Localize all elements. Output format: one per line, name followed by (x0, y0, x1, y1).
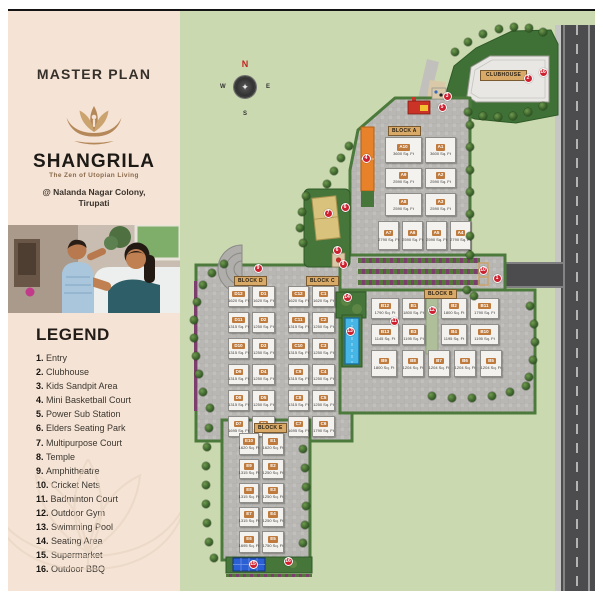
unit-id-chip: B9 (379, 358, 389, 365)
legend-item-label: Power Sub Station (46, 409, 121, 419)
unit-id-chip: C2 (319, 317, 329, 324)
marker-13: 13 (346, 327, 355, 336)
unit-E8: E81315 Sq. Ft (239, 483, 259, 503)
master-plan-page: MASTER PLAN SHANGRILA The Zen of Utopian… (0, 0, 603, 599)
block-label-block-b: BLOCK B (424, 289, 457, 299)
unit-sqft: 3600 Sq. Ft (393, 152, 414, 156)
legend-item-label: Clubhouse (46, 367, 89, 377)
unit-D5: D51250 Sq. Ft (252, 390, 275, 411)
unit-C5: C51250 Sq. Ft (312, 390, 335, 411)
legend-item-label: Cricket Nets (51, 480, 100, 490)
unit-id-chip: D3 (259, 343, 269, 350)
unit-id-chip: E6 (244, 536, 254, 543)
unit-B8: B81204 Sq. Ft (402, 350, 424, 377)
tree-icon (510, 23, 518, 31)
unit-sqft: 2790 Sq. Ft (378, 238, 399, 242)
unit-sqft: 1695 Sq. Ft (239, 544, 260, 548)
tree-icon (525, 24, 533, 32)
unit-id-chip: D11 (232, 317, 244, 324)
unit-B9: B91800 Sq. Ft (371, 350, 397, 377)
unit-sqft: 1250 Sq. Ft (263, 495, 284, 499)
legend-item-6: 6. Elders Seating Park (36, 424, 174, 433)
unit-id-chip: B5 (486, 358, 496, 365)
lotus-icon (62, 103, 126, 149)
unit-E3: E31250 Sq. Ft (262, 483, 284, 503)
legend-item-15: 15. Supermarket (36, 551, 174, 560)
tree-icon (448, 394, 456, 402)
legend-item-label: Temple (46, 452, 75, 462)
unit-B5: B51204 Sq. Ft (480, 350, 502, 377)
unit-id-chip: A2 (436, 172, 446, 179)
unit-id-chip: C3 (319, 343, 329, 350)
unit-id-chip: D10 (232, 343, 244, 350)
unit-id-chip: B2 (449, 303, 459, 310)
unit-sqft: 1750 Sq. Ft (263, 544, 284, 548)
unit-id-chip: C6 (319, 421, 329, 428)
legend-item-label: Multipurpose Court (46, 438, 122, 448)
unit-sqft: 1250 Sq. Ft (253, 377, 274, 381)
unit-id-chip: E10 (243, 438, 255, 445)
info-panel: MASTER PLAN SHANGRILA The Zen of Utopian… (8, 11, 180, 591)
compass-west-label: W (220, 84, 226, 90)
unit-sqft: 1315 Sq. Ft (228, 325, 249, 329)
marker-14: 14 (343, 293, 352, 302)
legend-item-label: Elders Seating Park (46, 423, 126, 433)
compass-south-label: S (220, 111, 270, 117)
unit-D1: D11620 Sq. Ft (252, 286, 275, 307)
unit-A2: A22590 Sq. Ft (425, 168, 456, 188)
unit-id-chip: A10 (397, 144, 409, 151)
tree-icon (466, 143, 474, 151)
unit-E2: E21250 Sq. Ft (262, 459, 284, 479)
unit-id-chip: B1 (409, 303, 419, 310)
unit-sqft: 1204 Sq. Ft (429, 366, 450, 370)
legend-item-4: 4. Mini Basketball Court (36, 396, 174, 405)
unit-E9: E91315 Sq. Ft (239, 459, 259, 479)
brand-logo (8, 103, 180, 149)
tree-icon (203, 519, 211, 527)
unit-id-chip: A5 (432, 230, 442, 237)
marker-9: 9 (254, 264, 263, 273)
tree-icon (299, 239, 307, 247)
tree-icon (299, 539, 307, 547)
unit-sqft: 1315 Sq. Ft (239, 471, 260, 475)
tree-icon (298, 208, 306, 216)
tree-icon (210, 554, 218, 562)
unit-C7: C71695 Sq. Ft (288, 416, 309, 437)
unit-id-chip: C11 (292, 317, 304, 324)
legend-item-label: Outdoor Gym (51, 508, 105, 518)
marker-16: 16 (539, 68, 548, 77)
tree-icon (337, 154, 345, 162)
tree-icon (199, 281, 207, 289)
unit-sqft: 2590 Sq. Ft (402, 238, 423, 242)
tree-icon (296, 224, 304, 232)
tree-icon (302, 483, 310, 491)
unit-id-chip: B4 (449, 329, 459, 336)
unit-id-chip: D4 (259, 369, 269, 376)
compass-east-label: E (266, 84, 270, 90)
legend-item-label: Supermarket (51, 550, 103, 560)
unit-E5: E51750 Sq. Ft (262, 531, 284, 553)
tree-icon (195, 370, 203, 378)
marker-7: 7 (324, 209, 333, 218)
unit-E1: E11620 Sq. Ft (262, 433, 284, 455)
mother-child-photo (8, 225, 180, 313)
unit-C4: C41250 Sq. Ft (312, 364, 335, 385)
unit-sqft: 1315 Sq. Ft (239, 495, 260, 499)
unit-id-chip: A9 (399, 172, 409, 179)
unit-B7: B71204 Sq. Ft (428, 350, 450, 377)
unit-B4: B41195 Sq. Ft (441, 324, 467, 345)
legend-item-number: 3. (36, 381, 46, 391)
tree-icon (495, 25, 503, 33)
legend-heading: LEGEND (36, 325, 174, 345)
tree-icon (466, 232, 474, 240)
unit-id-chip: B10 (478, 329, 490, 336)
unit-C12: C121620 Sq. Ft (288, 286, 309, 307)
unit-id-chip: E8 (244, 487, 254, 494)
unit-D8: D81315 Sq. Ft (228, 390, 249, 411)
brand-tagline: The Zen of Utopian Living (8, 172, 180, 179)
unit-B6: B61204 Sq. Ft (454, 350, 476, 377)
tree-icon (202, 500, 210, 508)
legend-item-1: 1. Entry (36, 354, 174, 363)
unit-D3: D31250 Sq. Ft (252, 338, 275, 359)
unit-id-chip: E7 (244, 511, 254, 518)
unit-B2: B21800 Sq. Ft (441, 298, 467, 319)
tree-icon (299, 445, 307, 453)
unit-sqft: 1195 Sq. Ft (444, 337, 464, 341)
unit-sqft: 1250 Sq. Ft (313, 351, 334, 355)
legend-item-label: Mini Basketball Court (46, 395, 131, 405)
unit-sqft: 1315 Sq. Ft (288, 403, 309, 407)
tree-icon (522, 382, 530, 390)
legend-item-number: 4. (36, 395, 46, 405)
unit-id-chip: A3 (436, 199, 446, 206)
address-line-1: @ Nalanda Nagar Colony, (8, 187, 180, 198)
unit-A6: A62590 Sq. Ft (402, 221, 423, 250)
unit-sqft: 1250 Sq. Ft (263, 519, 284, 523)
legend-item-number: 6. (36, 423, 46, 433)
unit-id-chip: B7 (434, 358, 444, 365)
unit-sqft: 1800 Sq. Ft (403, 311, 424, 315)
unit-sqft: 1195 Sq. Ft (474, 337, 494, 341)
tree-icon (192, 352, 200, 360)
marker-16: 16 (284, 557, 293, 566)
legend-item-number: 2. (36, 367, 46, 377)
unit-id-chip: D5 (259, 395, 269, 402)
legend-item-5: 5. Power Sub Station (36, 410, 174, 419)
unit-C8: C81315 Sq. Ft (288, 390, 309, 411)
unit-sqft: 2590 Sq. Ft (430, 207, 451, 211)
unit-id-chip: E9 (244, 463, 254, 470)
unit-id-chip: B3 (409, 329, 419, 336)
unit-sqft: 1620 Sq. Ft (253, 299, 274, 303)
tree-icon (301, 464, 309, 472)
tree-icon (466, 188, 474, 196)
unit-B13: B131145 Sq. Ft (371, 324, 399, 345)
unit-sqft: 1204 Sq. Ft (481, 366, 502, 370)
unit-id-chip: D12 (232, 291, 244, 298)
unit-sqft: 1250 Sq. Ft (253, 351, 274, 355)
block-label-block-e: BLOCK E (254, 423, 287, 433)
unit-A8: A82590 Sq. Ft (385, 193, 422, 216)
unit-id-chip: D1 (259, 291, 269, 298)
tree-icon (301, 521, 309, 529)
unit-sqft: 1800 Sq. Ft (374, 366, 395, 370)
tree-icon (190, 316, 198, 324)
tree-icon (509, 112, 517, 120)
unit-sqft: 1250 Sq. Ft (313, 403, 334, 407)
legend-item-number: 8. (36, 452, 46, 462)
tree-icon (208, 269, 216, 277)
unit-id-chip: C1 (319, 291, 329, 298)
tree-icon (302, 502, 310, 510)
unit-C1: C11620 Sq. Ft (312, 286, 335, 307)
tree-icon (206, 404, 214, 412)
legend-item-label: Swimming Pool (51, 522, 113, 532)
block-label-block-a: BLOCK A (388, 126, 421, 136)
unit-id-chip: C5 (319, 395, 329, 402)
tree-icon (466, 251, 474, 259)
tree-icon (506, 388, 514, 396)
unit-D10: D101315 Sq. Ft (228, 338, 249, 359)
legend-item-14: 14. Seating Area (36, 537, 174, 546)
unit-id-chip: B8 (408, 358, 418, 365)
legend-item-9: 9. Amphitheatre (36, 467, 174, 476)
block-label-block-d: BLOCK D (234, 276, 267, 286)
legend-item-number: 11. (36, 494, 51, 504)
marker-6: 6 (333, 246, 342, 255)
unit-D12: D121620 Sq. Ft (228, 286, 249, 307)
unit-id-chip: A4 (456, 230, 466, 237)
unit-sqft: 1620 Sq. Ft (228, 299, 249, 303)
legend-item-number: 9. (36, 466, 46, 476)
marker-10: 10 (479, 266, 488, 275)
marker-15: 15 (249, 560, 258, 569)
unit-sqft: 1315 Sq. Ft (228, 403, 249, 407)
legend-item-number: 15. (36, 550, 51, 560)
marker-5: 5 (438, 103, 447, 112)
legend-item-13: 13. Swimming Pool (36, 523, 174, 532)
legend-item-12: 12. Outdoor Gym (36, 509, 174, 518)
unit-A1: A13600 Sq. Ft (425, 137, 456, 163)
unit-id-chip: D7 (234, 421, 244, 428)
legend-item-number: 5. (36, 409, 46, 419)
legend-item-11: 11. Badminton Court (36, 495, 174, 504)
unit-id-chip: A7 (384, 230, 394, 237)
site-map: N W E S ✦ CLUBHOUSE BLOCK AA103600 Sq. F… (180, 11, 595, 591)
tree-icon (323, 180, 331, 188)
compass-north-label: N (220, 59, 270, 69)
legend-item-3: 3. Kids Sandpit Area (36, 382, 174, 391)
unit-C10: C101315 Sq. Ft (288, 338, 309, 359)
unit-id-chip: C10 (292, 343, 304, 350)
unit-E10: E101620 Sq. Ft (239, 433, 259, 455)
unit-id-chip: E4 (268, 511, 278, 518)
tree-icon (466, 166, 474, 174)
tree-icon (202, 462, 210, 470)
unit-id-chip: B6 (460, 358, 470, 365)
unit-B1: B11800 Sq. Ft (402, 298, 425, 319)
unit-sqft: 1695 Sq. Ft (228, 429, 249, 433)
tree-icon (526, 302, 534, 310)
tree-icon (539, 102, 547, 110)
tree-icon (479, 30, 487, 38)
unit-id-chip: C9 (294, 369, 304, 376)
unit-sqft: 1620 Sq. Ft (239, 446, 260, 450)
unit-id-chip: E1 (268, 438, 278, 445)
tree-icon (451, 48, 459, 56)
marker-6: 6 (341, 203, 350, 212)
legend-item-label: Amphitheatre (46, 466, 100, 476)
tree-icon (470, 292, 478, 300)
legend-item-number: 14. (36, 536, 51, 546)
unit-id-chip: B13 (379, 329, 391, 336)
marker-12: 12 (428, 306, 437, 315)
unit-sqft: 1145 Sq. Ft (375, 337, 395, 341)
unit-sqft: 3600 Sq. Ft (430, 152, 451, 156)
legend-item-label: Seating Area (51, 536, 103, 546)
unit-id-chip: D8 (234, 395, 244, 402)
clubhouse-label: CLUBHOUSE (480, 70, 527, 81)
unit-sqft: 1620 Sq. Ft (288, 299, 309, 303)
page-title: MASTER PLAN (8, 66, 180, 82)
unit-sqft: 1315 Sq. Ft (288, 377, 309, 381)
unit-id-chip: C4 (319, 369, 329, 376)
tree-icon (203, 443, 211, 451)
unit-sqft: 1315 Sq. Ft (228, 377, 249, 381)
unit-sqft: 1250 Sq. Ft (253, 325, 274, 329)
legend-item-number: 12. (36, 508, 51, 518)
unit-C3: C31250 Sq. Ft (312, 338, 335, 359)
unit-sqft: 1695 Sq. Ft (288, 429, 309, 433)
tree-icon (190, 334, 198, 342)
unit-sqft: 1620 Sq. Ft (313, 299, 334, 303)
marker-4: 4 (362, 154, 371, 163)
unit-C2: C21250 Sq. Ft (312, 312, 335, 333)
marker-8: 8 (339, 260, 348, 269)
unit-C9: C91315 Sq. Ft (288, 364, 309, 385)
unit-id-chip: C7 (294, 421, 304, 428)
legend-item-number: 10. (36, 480, 51, 490)
unit-A3: A32590 Sq. Ft (425, 193, 456, 216)
legend-item-label: Kids Sandpit Area (46, 381, 118, 391)
unit-sqft: 1250 Sq. Ft (313, 325, 334, 329)
unit-E4: E41250 Sq. Ft (262, 507, 284, 527)
compass-dial-icon: ✦ (234, 76, 256, 98)
unit-id-chip: C8 (294, 395, 304, 402)
tree-icon (494, 113, 502, 121)
tree-icon (205, 538, 213, 546)
tree-icon (525, 373, 533, 381)
family-photo (8, 225, 180, 313)
unit-sqft: 1790 Sq. Ft (313, 429, 334, 433)
tree-icon (202, 481, 210, 489)
unit-sqft: 1315 Sq. Ft (239, 519, 260, 523)
unit-D11: D111315 Sq. Ft (228, 312, 249, 333)
address-line-2: Tirupati (8, 198, 180, 209)
tree-icon (531, 338, 539, 346)
tree-icon (193, 298, 201, 306)
marker-3: 3 (443, 92, 452, 101)
unit-B12: B121790 Sq. Ft (371, 298, 399, 319)
unit-sqft: 1250 Sq. Ft (253, 403, 274, 407)
tree-icon (466, 210, 474, 218)
unit-B10: B101195 Sq. Ft (470, 324, 499, 345)
block-label-block-c: BLOCK C (306, 276, 339, 286)
tree-icon (524, 108, 532, 116)
marker-2: 2 (524, 74, 533, 83)
unit-id-chip: E3 (268, 487, 278, 494)
legend-item-label: Badminton Court (51, 494, 119, 504)
unit-sqft: 1790 Sq. Ft (375, 311, 396, 315)
unit-sqft: 1204 Sq. Ft (455, 366, 476, 370)
unit-sqft: 2590 Sq. Ft (426, 238, 447, 242)
legend: LEGEND 1. Entry2. Clubhouse3. Kids Sandp… (36, 325, 174, 580)
unit-D4: D41250 Sq. Ft (252, 364, 275, 385)
unit-id-chip: E5 (268, 536, 278, 543)
marker-1: 1 (493, 274, 502, 283)
unit-sqft: 2590 Sq. Ft (393, 207, 414, 211)
legend-item-2: 2. Clubhouse (36, 368, 174, 377)
unit-E6: E61695 Sq. Ft (239, 531, 259, 553)
unit-id-chip: E2 (268, 463, 278, 470)
tree-icon (488, 392, 496, 400)
tree-icon (199, 388, 207, 396)
legend-item-label: Entry (46, 353, 67, 363)
unit-E7: E71315 Sq. Ft (239, 507, 259, 527)
unit-id-chip: B12 (379, 303, 391, 310)
unit-id-chip: D2 (259, 317, 269, 324)
unit-id-chip: D9 (234, 369, 244, 376)
unit-sqft: 2590 Sq. Ft (430, 180, 451, 184)
legend-item-10: 10. Cricket Nets (36, 481, 174, 490)
unit-A7: A72790 Sq. Ft (378, 221, 399, 250)
compass: N W E S ✦ (220, 59, 270, 117)
legend-list: 1. Entry2. Clubhouse3. Kids Sandpit Area… (36, 354, 174, 574)
unit-id-chip: C12 (292, 291, 304, 298)
tree-icon (464, 108, 472, 116)
tree-icon (530, 320, 538, 328)
unit-D9: D91315 Sq. Ft (228, 364, 249, 385)
brand-address: @ Nalanda Nagar Colony, Tirupati (8, 187, 180, 209)
tree-icon (466, 121, 474, 129)
legend-item-number: 16. (36, 564, 51, 574)
legend-item-number: 7. (36, 438, 46, 448)
legend-item-7: 7. Multipurpose Court (36, 439, 174, 448)
unit-sqft: 2590 Sq. Ft (393, 180, 414, 184)
tree-icon (428, 392, 436, 400)
unit-sqft: 1315 Sq. Ft (228, 351, 249, 355)
unit-id-chip: A8 (399, 199, 409, 206)
unit-D2: D21250 Sq. Ft (252, 312, 275, 333)
marker-11: 11 (390, 317, 399, 326)
unit-sqft: 1790 Sq. Ft (474, 311, 495, 315)
tree-icon (330, 167, 338, 175)
unit-sqft: 1195 Sq. Ft (403, 337, 423, 341)
tree-icon (479, 112, 487, 120)
legend-item-number: 13. (36, 522, 51, 532)
unit-id-chip: A1 (436, 144, 446, 151)
unit-A5: A52590 Sq. Ft (426, 221, 447, 250)
unit-sqft: 1800 Sq. Ft (444, 311, 465, 315)
unit-B3: B31195 Sq. Ft (402, 324, 425, 345)
tree-icon (205, 424, 213, 432)
unit-C11: C111315 Sq. Ft (288, 312, 309, 333)
unit-C6: C61790 Sq. Ft (312, 416, 335, 437)
